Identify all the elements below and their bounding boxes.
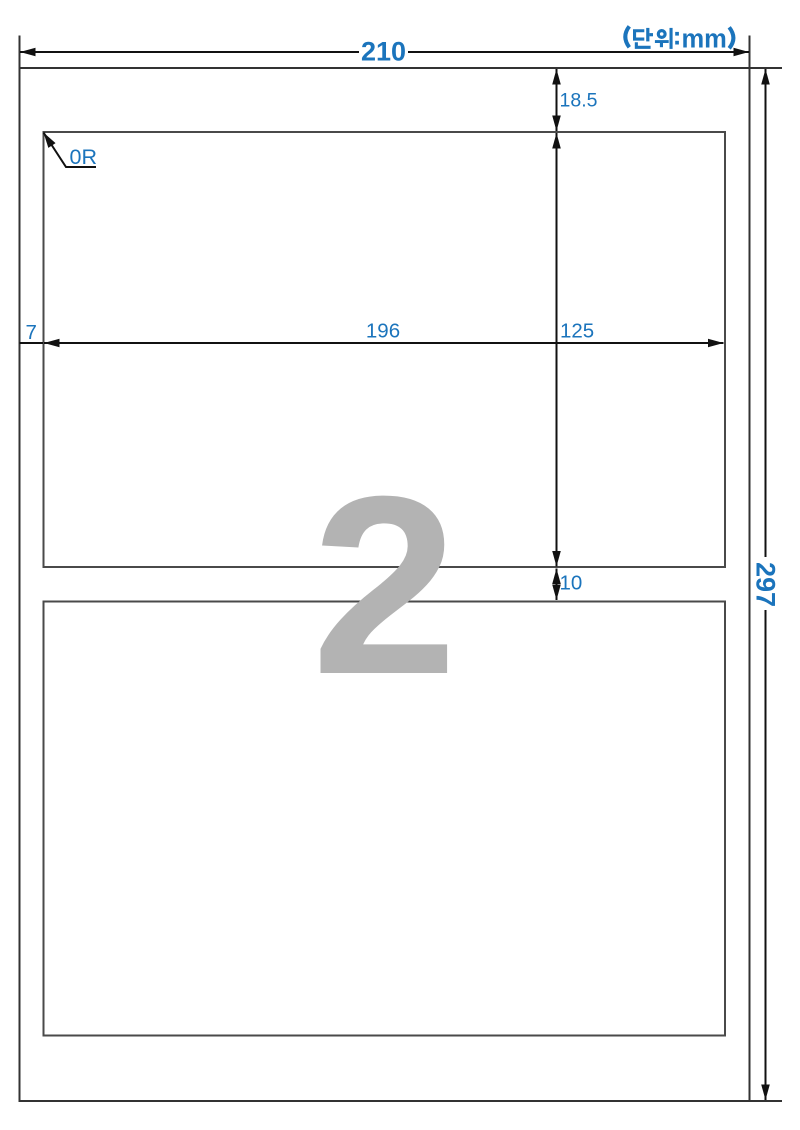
svg-text:0R: 0R [70,145,97,169]
svg-text:210: 210 [361,37,406,67]
svg-text:297: 297 [751,562,781,607]
svg-text:2: 2 [311,443,457,727]
svg-text:7: 7 [26,321,37,344]
svg-text:18.5: 18.5 [560,90,598,112]
svg-text:125: 125 [560,320,594,343]
svg-text:196: 196 [366,320,400,343]
svg-text:mm: mm [682,26,727,54]
svg-text:10: 10 [560,572,583,595]
